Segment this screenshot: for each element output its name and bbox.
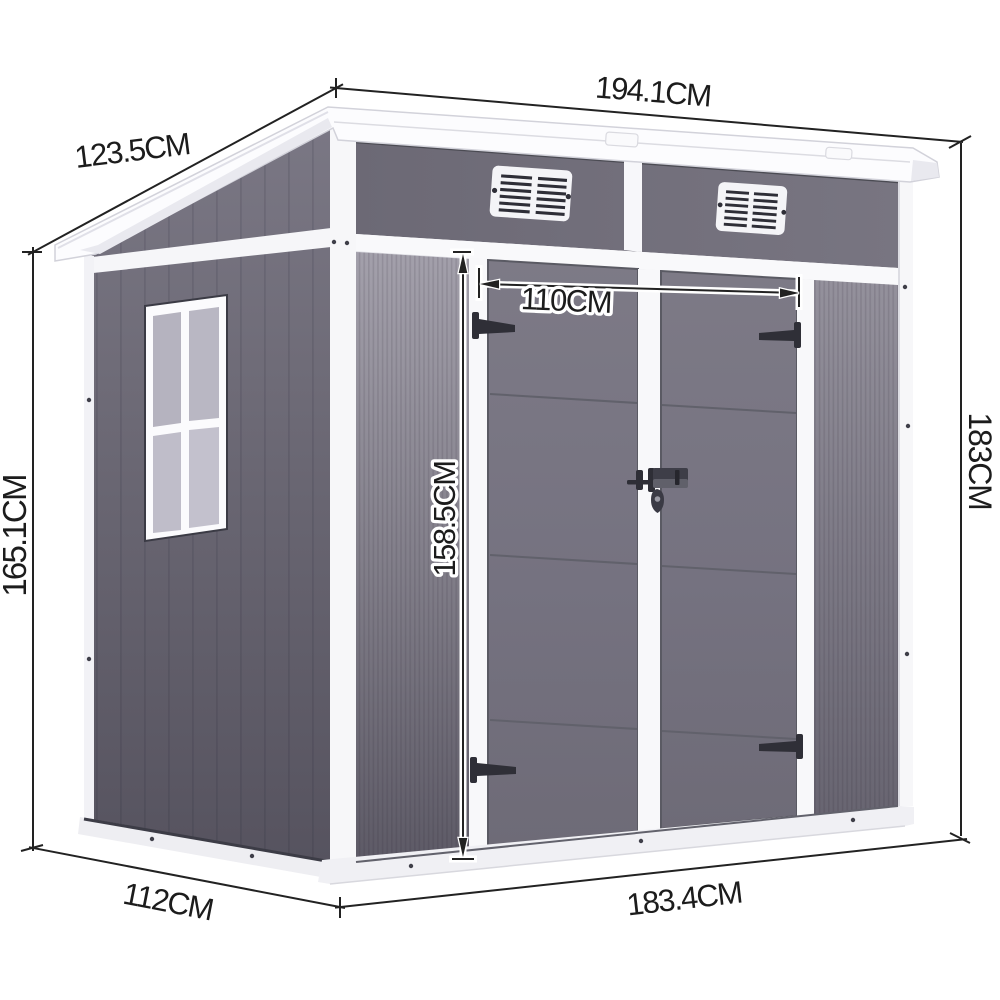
- svg-text:110CM: 110CM: [520, 281, 612, 320]
- svg-text:183CM: 183CM: [962, 412, 998, 509]
- svg-text:165.1CM: 165.1CM: [0, 475, 33, 596]
- svg-text:158.5CM: 158.5CM: [427, 461, 462, 576]
